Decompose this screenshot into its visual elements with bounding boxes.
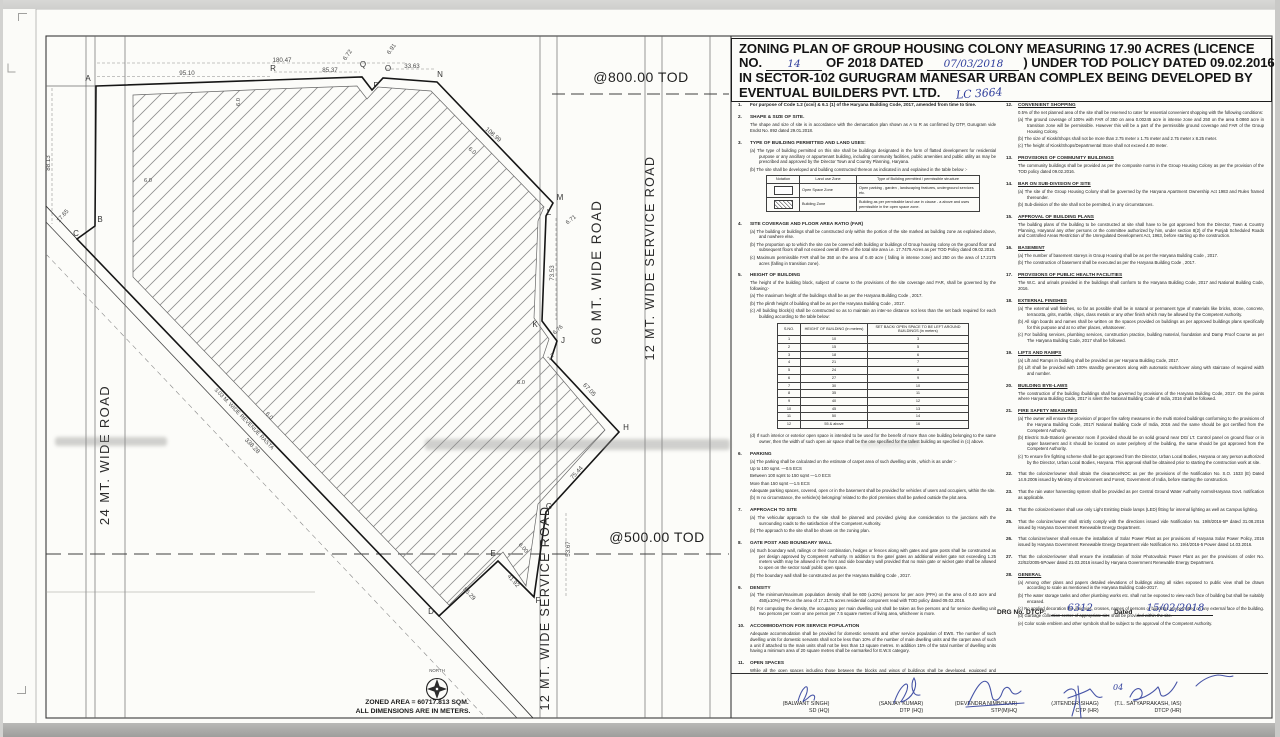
- table-cell: 50: [801, 413, 868, 421]
- clause-text: (a) The owner will ensure the provision …: [1018, 416, 1264, 433]
- boundary-point-letter: A: [85, 74, 91, 83]
- signatory-title: STP(M)HQ: [955, 708, 1017, 715]
- clause-text: While all the open spaces including thos…: [750, 668, 996, 672]
- column-header: S.NO.: [778, 323, 801, 335]
- table-cell: 3: [868, 336, 969, 344]
- scan-smudge: [425, 439, 730, 450]
- clause-text: 0.5% of the net planned area of the site…: [1018, 110, 1264, 116]
- clause-24: 24.That the colonizer/owner shall use on…: [1006, 507, 1264, 514]
- title-line-3: IN SECTOR-102 GURUGRAM MANESAR URBAN COM…: [739, 71, 1266, 85]
- clause-heading: BASEMENT: [1018, 245, 1264, 251]
- clause-body: BUILDING BYE-LAWSThe construction of the…: [1018, 383, 1264, 404]
- scanned-zoning-plan-page: { "title": { "line1": "ZONING PLAN OF GR…: [0, 0, 1280, 737]
- clause-8: 8.GATE POST AND BOUNDARY WALL(a) Such bo…: [738, 540, 996, 580]
- table-cell: 7: [868, 359, 969, 367]
- clause-3: 3.TYPE OF BUILDING PERMITTED AND LAND US…: [738, 140, 996, 216]
- scan-edge-left: [0, 0, 3, 737]
- clause-body: That colonizer/owner shall ensure the in…: [1018, 536, 1264, 549]
- handwritten-licence-date: 07/03/2018: [944, 58, 1004, 70]
- clause-body: TYPE OF BUILDING PERMITTED AND LAND USES…: [750, 140, 996, 216]
- table-cell: 24: [801, 367, 868, 375]
- registration-mark: [17, 686, 26, 694]
- clause-number: 23.: [1006, 489, 1018, 502]
- table-row: 2155: [778, 343, 969, 351]
- clause-body: SITE COVERAGE AND FLOOR AREA RATIO (FAR)…: [750, 221, 996, 268]
- handwritten-drg-date: 15/02/2018: [1147, 603, 1205, 614]
- clause-number: 22.: [1006, 471, 1018, 484]
- clause-text: (b) The site shall be developed and buil…: [750, 167, 996, 173]
- clause-text: (c) The height of Kiosk/Shops/Department…: [1018, 143, 1264, 149]
- clause-text: (a) Such boundary wall, railings or thei…: [750, 548, 996, 571]
- handwritten-annotation: LC 3664: [956, 85, 1003, 103]
- clause-text: (c) To ensure fire fighting scheme shall…: [1018, 454, 1264, 466]
- clause-heading: DENSITY: [750, 585, 996, 591]
- signatory-name: (DEVENDRA NIMBOKAR): [955, 701, 1017, 708]
- boundary-point-letter: B: [97, 215, 102, 224]
- clause-20: 20.BUILDING BYE-LAWSThe construction of …: [1006, 383, 1264, 404]
- dimension-label: 6.0: [236, 98, 242, 106]
- road-label: 12 MT. WIDE SERVICE ROAD: [643, 156, 657, 361]
- clause-number: 5.: [738, 272, 750, 446]
- table-cell: 6: [778, 374, 801, 382]
- boundary-point-letter: G: [546, 502, 552, 511]
- clause-5: 5.HEIGHT OF BUILDINGThe height of the bu…: [738, 272, 996, 446]
- notation-cell: [767, 184, 800, 198]
- dimension-label: 85.37: [322, 67, 338, 74]
- plan-note: ALL DIMENSIONS ARE IN METERS.: [356, 708, 471, 715]
- table-cell: 10: [801, 336, 868, 344]
- zone-cell: Building Zone: [800, 198, 857, 212]
- boundary-point-letter: J: [561, 336, 565, 345]
- clause-text: (e) Color scale emblem and other symbols…: [1018, 621, 1264, 627]
- drg-dated-label: Dated: [1114, 609, 1132, 616]
- clause-number: 3.: [738, 140, 750, 216]
- table-cell: 1: [778, 336, 801, 344]
- clause-text: The height of the building block, subjec…: [750, 280, 996, 292]
- drg-number-line: DRG No. DTCP: 6312 Dated 15/02/2018: [997, 603, 1213, 616]
- signature-block: (BALWANT SINGH)SD (HQ): [783, 701, 830, 715]
- table-row: 4217: [778, 359, 969, 367]
- clause-text: (b) The construction of basement shall b…: [1018, 260, 1264, 266]
- title-block: ZONING PLAN OF GROUP HOUSING COLONY MEAS…: [731, 38, 1272, 102]
- road-label: 60 MT. WIDE ROAD: [589, 200, 604, 345]
- table-row: 1103: [778, 336, 969, 344]
- table-row: 3186: [778, 351, 969, 359]
- clause-text: That the colonizer/owner shall use only …: [1018, 507, 1264, 513]
- dimension-label: 88.13: [45, 155, 52, 171]
- clause-text: The building plans of the building to be…: [1018, 222, 1264, 239]
- table-cell: 15: [801, 343, 868, 351]
- boundary-point-letter: H: [623, 423, 629, 432]
- clause-text: The W.C. and urinals provided in the bui…: [1018, 280, 1264, 292]
- table-cell: 12: [778, 421, 801, 429]
- clause-11: 11.OPEN SPACESWhile all the open spaces …: [738, 660, 996, 672]
- boundary-point-letter: D: [428, 607, 434, 616]
- clause-text: The shape and size of site is in accorda…: [750, 122, 996, 134]
- clause-body: HEIGHT OF BUILDINGThe height of the buil…: [750, 272, 996, 446]
- dimension-label: 6.0: [517, 380, 525, 386]
- clause-body: DENSITY(a) The minimum/maximum populatio…: [750, 585, 996, 619]
- clause-text: (b) The plinth height of building shall …: [750, 301, 996, 307]
- clause-text: (a) The type of building permitted on th…: [750, 148, 996, 165]
- table-cell: 18: [801, 351, 868, 359]
- clauses-column-left: 1.For purpose of Code 1.2 (xcvi) & 6.1 (…: [738, 102, 996, 672]
- signatory-name: (BALWANT SINGH): [783, 701, 830, 708]
- clause-body: FIRE SAFETY MEASURES(a) The owner will e…: [1018, 408, 1264, 467]
- table-cell: 11: [778, 413, 801, 421]
- table-cell: 5: [868, 343, 969, 351]
- clause-number: 13.: [1006, 155, 1018, 176]
- clause-heading: ACCOMMODATION FOR SERVICE POPULATION: [750, 623, 996, 629]
- clause-19: 19.LIFTS AND RAMPS(a) Lift and Ramps in …: [1006, 350, 1264, 378]
- licence-date-blank: 07/03/2018: [927, 57, 1019, 71]
- signatory-title: CTP (HR): [1051, 708, 1098, 715]
- clause-body: APPROVAL OF BUILDING PLANSThe building p…: [1018, 214, 1264, 241]
- signatory-name: (T.L. SATYAPRAKASH, IAS): [1115, 701, 1182, 708]
- clause-number: 8.: [738, 540, 750, 580]
- clause-body: GATE POST AND BOUNDARY WALL(a) Such boun…: [750, 540, 996, 580]
- column-header: Type of Building permitted / permissible…: [857, 176, 980, 184]
- table-row: 5248: [778, 367, 969, 375]
- table-row: 104513: [778, 405, 969, 413]
- table-row: 115014: [778, 413, 969, 421]
- clause-number: 7.: [738, 507, 750, 535]
- boundary-point-letter: P: [373, 81, 378, 90]
- dimension-label: 95.10: [179, 70, 195, 77]
- zone-cell: Open Space Zone: [800, 184, 857, 198]
- clause-heading: SITE COVERAGE AND FLOOR AREA RATIO (FAR): [750, 221, 996, 227]
- handwritten-licence-no: 14: [787, 58, 800, 70]
- clause-text: That the colonizer/owner shall ensure th…: [1018, 554, 1264, 566]
- clause-text: (c) For building services, plumbing serv…: [1018, 332, 1264, 344]
- table-cell: 11: [868, 390, 969, 398]
- signature-block: (DEVENDRA NIMBOKAR)STP(M)HQ: [955, 701, 1017, 715]
- clause-17: 17.PROVISIONS OF PUBLIC HEALTH FACILITIE…: [1006, 272, 1264, 293]
- boundary-point-letter: K: [532, 320, 538, 329]
- clause-number: 24.: [1006, 507, 1018, 514]
- table-cell: 16: [868, 421, 969, 429]
- height-setback-table: S.NO.HEIGHT OF BUILDING (in meters)SET B…: [777, 323, 969, 429]
- clause-1: 1.For purpose of Code 1.2 (xcvi) & 6.1 (…: [738, 102, 996, 110]
- clause-number: 14.: [1006, 181, 1018, 209]
- boundary-point-letter: Q: [360, 60, 366, 69]
- clause-heading: FIRE SAFETY MEASURES: [1018, 408, 1264, 414]
- signature-block: (JITENDER SIHAG)CTP (HR): [1051, 701, 1098, 715]
- type-cell: Building as per permissible land use in …: [857, 198, 980, 212]
- clause-heading: OPEN SPACES: [750, 660, 996, 666]
- clause-number: 18.: [1006, 298, 1018, 345]
- boundary-point-letter: M: [557, 193, 564, 202]
- table-row: Building ZoneBuilding as per permissible…: [767, 198, 980, 212]
- clause-heading: GATE POST AND BOUNDARY WALL: [750, 540, 996, 546]
- table-cell: 14: [868, 413, 969, 421]
- table-cell: 30: [801, 382, 868, 390]
- clause-body: APPROACH TO SITE(a) The vehicular approa…: [750, 507, 996, 535]
- clause-23: 23.That the rain water harvesting system…: [1006, 489, 1264, 502]
- clause-heading: BAR ON SUB-DIVISION OF SITE: [1018, 181, 1264, 187]
- signature-strip: (BALWANT SINGH)SD (HQ)(SANJAY KUMAR)DTP …: [731, 673, 1268, 719]
- drg-number-blank: 6312: [1051, 603, 1109, 616]
- clauses-column-right: 12.CONVENIENT SHOPPING0.5% of the net pl…: [1006, 102, 1264, 672]
- zoning-text-panel: ZONING PLAN OF GROUP HOUSING COLONY MEAS…: [731, 36, 1268, 718]
- clause-4: 4.SITE COVERAGE AND FLOOR AREA RATIO (FA…: [738, 221, 996, 268]
- scan-edge-bottom: [0, 723, 1280, 737]
- clause-heading: CONVENIENT SHOPPING: [1018, 102, 1264, 108]
- clause-27: 27.That the colonizer/owner shall ensure…: [1006, 554, 1264, 567]
- signatory-title: DTP (HQ): [879, 708, 923, 715]
- title-line-4: EVENTUAL BUILDERS PVT. LTD.LC 3664: [739, 86, 1266, 101]
- clause-text: (a) Among other plans and papers detaile…: [1018, 580, 1264, 592]
- clause-21: 21.FIRE SAFETY MEASURES(a) The owner wil…: [1006, 408, 1264, 467]
- clause-text: That colonizer/owner shall ensure the in…: [1018, 536, 1264, 548]
- column-header: SET BACK/ OPEN SPACE TO BE LEFT AROUND B…: [868, 323, 969, 335]
- clause-28: 28.GENERAL(a) Among other plans and pape…: [1006, 572, 1264, 628]
- clause-body: BAR ON SUB-DIVISION OF SITE(a) The site …: [1018, 181, 1264, 209]
- dimension-label: 6.0: [144, 178, 152, 184]
- tod-level-label: @500.00 TOD: [609, 529, 704, 545]
- clause-text: Adequate parking spaces, covered, open o…: [750, 488, 996, 494]
- table-row: 6279: [778, 374, 969, 382]
- clause-body: PROVISIONS OF PUBLIC HEALTH FACILITIESTh…: [1018, 272, 1264, 293]
- clause-25: 25.That the colonizer/owner shall strict…: [1006, 519, 1264, 532]
- clause-text: (d) If such interior or exterior open sp…: [750, 433, 996, 445]
- table-cell: 35: [801, 390, 868, 398]
- boundary-point-letter: C: [73, 229, 79, 238]
- table-cell: 10: [868, 382, 969, 390]
- north-compass-icon: [427, 679, 448, 700]
- clause-body: PARKING(a) The parking shall be calculat…: [750, 451, 996, 503]
- clause-body: For purpose of Code 1.2 (xcvi) & 6.1 (1)…: [750, 102, 996, 110]
- boundary-point-letter: L: [547, 208, 552, 217]
- boundary-point-letter: R: [270, 64, 276, 73]
- clause-number: 12.: [1006, 102, 1018, 151]
- clause-heading: PROVISIONS OF PUBLIC HEALTH FACILITIES: [1018, 272, 1264, 278]
- table-row: Open Space ZoneOpen parking , garden , l…: [767, 184, 980, 198]
- clause-body: That the colonizer/owner shall use only …: [1018, 507, 1264, 514]
- clause-text: (b) In no circumstance, the vehicle(s) b…: [750, 495, 996, 501]
- clause-text: The community buildings shall be provide…: [1018, 163, 1264, 175]
- clause-number: 15.: [1006, 214, 1018, 241]
- clause-text: (a) The vehicular approach to the site s…: [750, 515, 996, 527]
- clause-9: 9.DENSITY(a) The minimum/maximum populat…: [738, 585, 996, 619]
- land-use-table: NotationLand use ZoneType of Building pe…: [766, 175, 980, 212]
- clause-heading: TYPE OF BUILDING PERMITTED AND LAND USES…: [750, 140, 996, 146]
- table-cell: 10: [778, 405, 801, 413]
- boundary-point-letter: E: [490, 549, 495, 558]
- licence-no-label: NO.: [739, 55, 762, 70]
- table-row: 94012: [778, 398, 969, 406]
- table-header-row: S.NO.HEIGHT OF BUILDING (in meters)SET B…: [778, 323, 969, 335]
- clauses-columns: 1.For purpose of Code 1.2 (xcvi) & 6.1 (…: [738, 102, 1264, 672]
- clause-heading: BUILDING BYE-LAWS: [1018, 383, 1264, 389]
- clause-text: Adequate accommodation shall be provided…: [750, 631, 996, 654]
- clause-text: (b) Sub-division of the site shall not b…: [1018, 202, 1264, 208]
- clause-body: ACCOMMODATION FOR SERVICE POPULATIONAdeq…: [750, 623, 996, 655]
- clause-number: 11.: [738, 660, 750, 672]
- table-cell: 40: [801, 398, 868, 406]
- clause-body: That the rain water harvesting system sh…: [1018, 489, 1264, 502]
- clause-text: (b) All sign boards and names shall be w…: [1018, 319, 1264, 331]
- table-cell: 21: [801, 359, 868, 367]
- clause-text: (a) The external wall finishes, so far a…: [1018, 306, 1264, 318]
- clause-text: That the colonizer/owner shall obtain th…: [1018, 471, 1264, 483]
- scan-smudge: [55, 437, 167, 446]
- clause-heading: EXTERNAL FINISHES: [1018, 298, 1264, 304]
- boundary-point-letter: O: [385, 64, 391, 73]
- scan-edge-top: [0, 0, 1280, 9]
- clause-10: 10.ACCOMMODATION FOR SERVICE POPULATIONA…: [738, 623, 996, 655]
- clause-text: (a) Lift and Ramps in building shall be …: [1018, 358, 1264, 364]
- clause-number: 16.: [1006, 245, 1018, 268]
- of-2018-label: OF 2018 DATED: [826, 55, 923, 70]
- table-cell: 9: [868, 374, 969, 382]
- table-cell: 8: [868, 367, 969, 375]
- type-cell: Open parking , garden , landscaping feat…: [857, 184, 980, 198]
- clause-body: EXTERNAL FINISHES(a) The external wall f…: [1018, 298, 1264, 345]
- clause-12: 12.CONVENIENT SHOPPING0.5% of the net pl…: [1006, 102, 1264, 151]
- clause-16: 16.BASEMENT(a) The number of basement st…: [1006, 245, 1264, 268]
- clause-18: 18.EXTERNAL FINISHES(a) The external wal…: [1006, 298, 1264, 345]
- clause-number: 25.: [1006, 519, 1018, 532]
- signatory-title: SD (HQ): [783, 708, 830, 715]
- clause-text: Between 100 sqmt to 150 sqmt —1.0 ECS: [750, 473, 996, 479]
- tod-level-label: @800.00 TOD: [593, 69, 688, 85]
- clause-heading: APPROVAL OF BUILDING PLANS: [1018, 214, 1264, 220]
- table-cell: 2: [778, 343, 801, 351]
- clause-heading: PARKING: [750, 451, 996, 457]
- clause-text: (b) The size of Kiosk/Shops shall not be…: [1018, 136, 1264, 142]
- table-cell: 4: [778, 359, 801, 367]
- clause-text: The construction of the building /buildi…: [1018, 391, 1264, 403]
- table-cell: 6: [868, 351, 969, 359]
- clause-body: SHAPE & SIZE OF SITE.The shape and size …: [750, 114, 996, 135]
- open-notation-swatch: [774, 186, 793, 195]
- clause-text: (a) The minimum/maximum population densi…: [750, 592, 996, 604]
- clause-body: CONVENIENT SHOPPING0.5% of the net plann…: [1018, 102, 1264, 151]
- column-header: Land use Zone: [800, 176, 857, 184]
- boundary-point-letter: F: [536, 596, 541, 605]
- clause-number: 6.: [738, 451, 750, 503]
- clause-text: (c) Maximum permissible FAR shall be 350…: [750, 255, 996, 267]
- table-row: 83511: [778, 390, 969, 398]
- road-label: 24 MT. WIDE ROAD: [97, 385, 112, 525]
- clause-body: That the colonizer/owner shall obtain th…: [1018, 471, 1264, 484]
- clause-text: Up to 100 sqmt. —0.5 ECS: [750, 466, 996, 472]
- clause-text: (b) Lift shall be provided with 100% sta…: [1018, 365, 1264, 377]
- clause-heading: APPROACH TO SITE: [750, 507, 996, 513]
- table-cell: 45: [801, 405, 868, 413]
- clause-body: That the colonizer/owner shall ensure th…: [1018, 554, 1264, 567]
- clause-heading: SHAPE & SIZE OF SITE.: [750, 114, 996, 120]
- table-cell: 3: [778, 351, 801, 359]
- signatory-title: DTCP (HR): [1115, 708, 1182, 715]
- dimension-label: 73.53: [549, 265, 556, 281]
- clause-heading: LIFTS AND RAMPS: [1018, 350, 1264, 356]
- plan-note: ZONED AREA = 60717.813 SQM.: [365, 699, 469, 706]
- table-cell: 7: [778, 382, 801, 390]
- clause-number: 26.: [1006, 536, 1018, 549]
- clause-heading: HEIGHT OF BUILDING: [750, 272, 996, 278]
- table-cell: 12: [868, 398, 969, 406]
- registration-mark: [8, 64, 16, 73]
- clause-heading: GENERAL: [1018, 572, 1264, 578]
- title-line-1: ZONING PLAN OF GROUP HOUSING COLONY MEAS…: [739, 42, 1266, 56]
- clause-number: 1.: [738, 102, 750, 110]
- table-cell: 8: [778, 390, 801, 398]
- clause-body: PROVISIONS OF COMMUNITY BUILDINGSThe com…: [1018, 155, 1264, 176]
- dimension-label: 53.67: [565, 541, 572, 557]
- developer-name: EVENTUAL BUILDERS PVT. LTD.: [739, 85, 940, 100]
- clause-text: (a) The number of basement storeys in Gr…: [1018, 253, 1264, 259]
- clause-number: 21.: [1006, 408, 1018, 467]
- clause-number: 17.: [1006, 272, 1018, 293]
- clause-text: (a) The maximum height of the buildings …: [750, 293, 996, 299]
- table-header-row: NotationLand use ZoneType of Building pe…: [767, 176, 980, 184]
- signatory-name: (JITENDER SIHAG): [1051, 701, 1098, 708]
- clause-number: 9.: [738, 585, 750, 619]
- clause-heading: PROVISIONS OF COMMUNITY BUILDINGS: [1018, 155, 1264, 161]
- clause-6: 6.PARKING(a) The parking shall be calcul…: [738, 451, 996, 503]
- clause-14: 14.BAR ON SUB-DIVISION OF SITE(a) The si…: [1006, 181, 1264, 209]
- clause-body: LIFTS AND RAMPS(a) Lift and Ramps in bui…: [1018, 350, 1264, 378]
- signature-block: (SANJAY KUMAR)DTP (HQ): [879, 701, 923, 715]
- signatory-name: (SANJAY KUMAR): [879, 701, 923, 708]
- clause-number: 19.: [1006, 350, 1018, 378]
- clause-text: That the colonizer/owner shall strictly …: [1018, 519, 1264, 531]
- clause-number: 2.: [738, 114, 750, 135]
- signature-block: (T.L. SATYAPRAKASH, IAS)DTCP (HR): [1115, 701, 1182, 715]
- clause-number: 20.: [1006, 383, 1018, 404]
- scan-edge-right: [1275, 0, 1280, 737]
- clause-body: OPEN SPACESWhile all the open spaces inc…: [750, 660, 996, 672]
- table-cell: 55 & above: [801, 421, 868, 429]
- dimension-label: NORTH: [429, 668, 445, 673]
- clause-text: (b) The boundary wall shall be construct…: [750, 573, 996, 579]
- hatch-notation-swatch: [774, 200, 793, 209]
- clause-13: 13.PROVISIONS OF COMMUNITY BUILDINGSThe …: [1006, 155, 1264, 176]
- clause-text: That the rain water harvesting system sh…: [1018, 489, 1264, 501]
- clause-text: (b) Electric Sub-Station/ generator room…: [1018, 435, 1264, 452]
- dimension-label: 33.63: [404, 63, 420, 70]
- table-cell: 5: [778, 367, 801, 375]
- clause-text: (b) The proportion up to which the site …: [750, 242, 996, 254]
- clause-text: For purpose of Code 1.2 (xcvi) & 6.1 (1)…: [750, 102, 996, 108]
- dimension-label: 180.47: [273, 57, 292, 64]
- clause-number: 10.: [738, 623, 750, 655]
- clause-body: GENERAL(a) Among other plans and papers …: [1018, 572, 1264, 628]
- column-header: HEIGHT OF BUILDING (in meters): [801, 323, 868, 335]
- clause-7: 7.APPROACH TO SITE(a) The vehicular appr…: [738, 507, 996, 535]
- clause-text: (a) The parking shall be calculated on t…: [750, 459, 996, 465]
- boundary-point-letter: N: [437, 70, 443, 79]
- table-cell: 27: [801, 374, 868, 382]
- clause-text: (a) The site of the Group Housing Colony…: [1018, 189, 1264, 201]
- clause-text: (a) The building or buildings shall be c…: [750, 229, 996, 241]
- title-line-2: NO.14OF 2018 DATED07/03/2018) UNDER TOD …: [739, 56, 1266, 71]
- title-line-2-end: ) UNDER TOD POLICY DATED 09.02.2016: [1023, 55, 1274, 70]
- notation-cell: [767, 198, 800, 212]
- drg-date-blank: 15/02/2018: [1137, 603, 1213, 616]
- clause-body: BASEMENT(a) The number of basement store…: [1018, 245, 1264, 268]
- clause-number: 27.: [1006, 554, 1018, 567]
- clause-26: 26.That colonizer/owner shall ensure the…: [1006, 536, 1264, 549]
- licence-no-blank: 14: [766, 57, 822, 71]
- table-row: 1255 & above16: [778, 421, 969, 429]
- clause-text: (c) All building block(s) shall be const…: [750, 308, 996, 320]
- clause-body: That the colonizer/owner shall strictly …: [1018, 519, 1264, 532]
- table-row: 73010: [778, 382, 969, 390]
- registration-mark: [18, 13, 27, 21]
